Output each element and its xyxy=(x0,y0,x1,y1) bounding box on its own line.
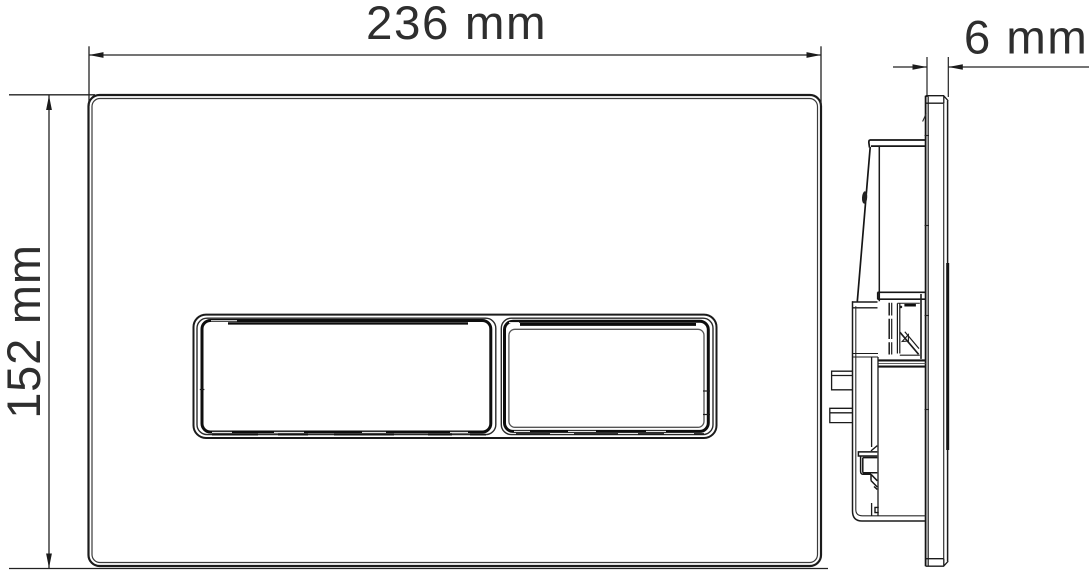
svg-text:152 mm: 152 mm xyxy=(0,244,50,419)
svg-text:6 mm: 6 mm xyxy=(964,11,1088,64)
svg-text:236 mm: 236 mm xyxy=(366,0,547,50)
